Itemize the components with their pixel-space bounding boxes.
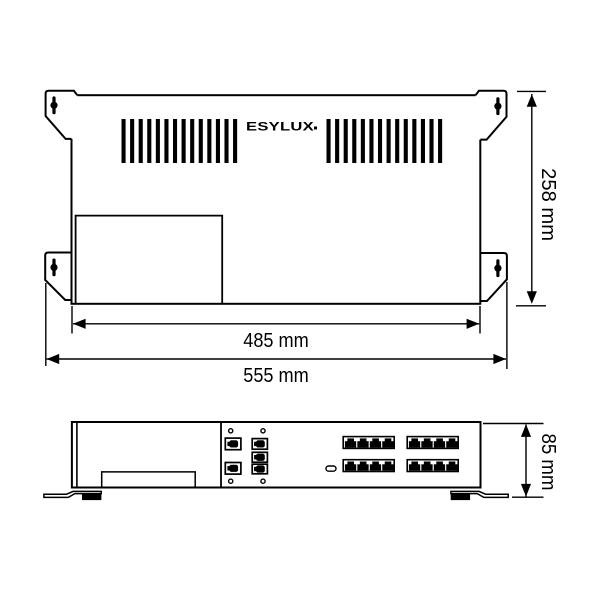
svg-text:ESYLUX: ESYLUX — [246, 121, 314, 134]
svg-text:258 mm: 258 mm — [537, 168, 559, 241]
svg-text:555 mm: 555 mm — [243, 365, 309, 387]
svg-text:85 mm: 85 mm — [537, 434, 559, 491]
svg-text:485 mm: 485 mm — [243, 330, 309, 352]
